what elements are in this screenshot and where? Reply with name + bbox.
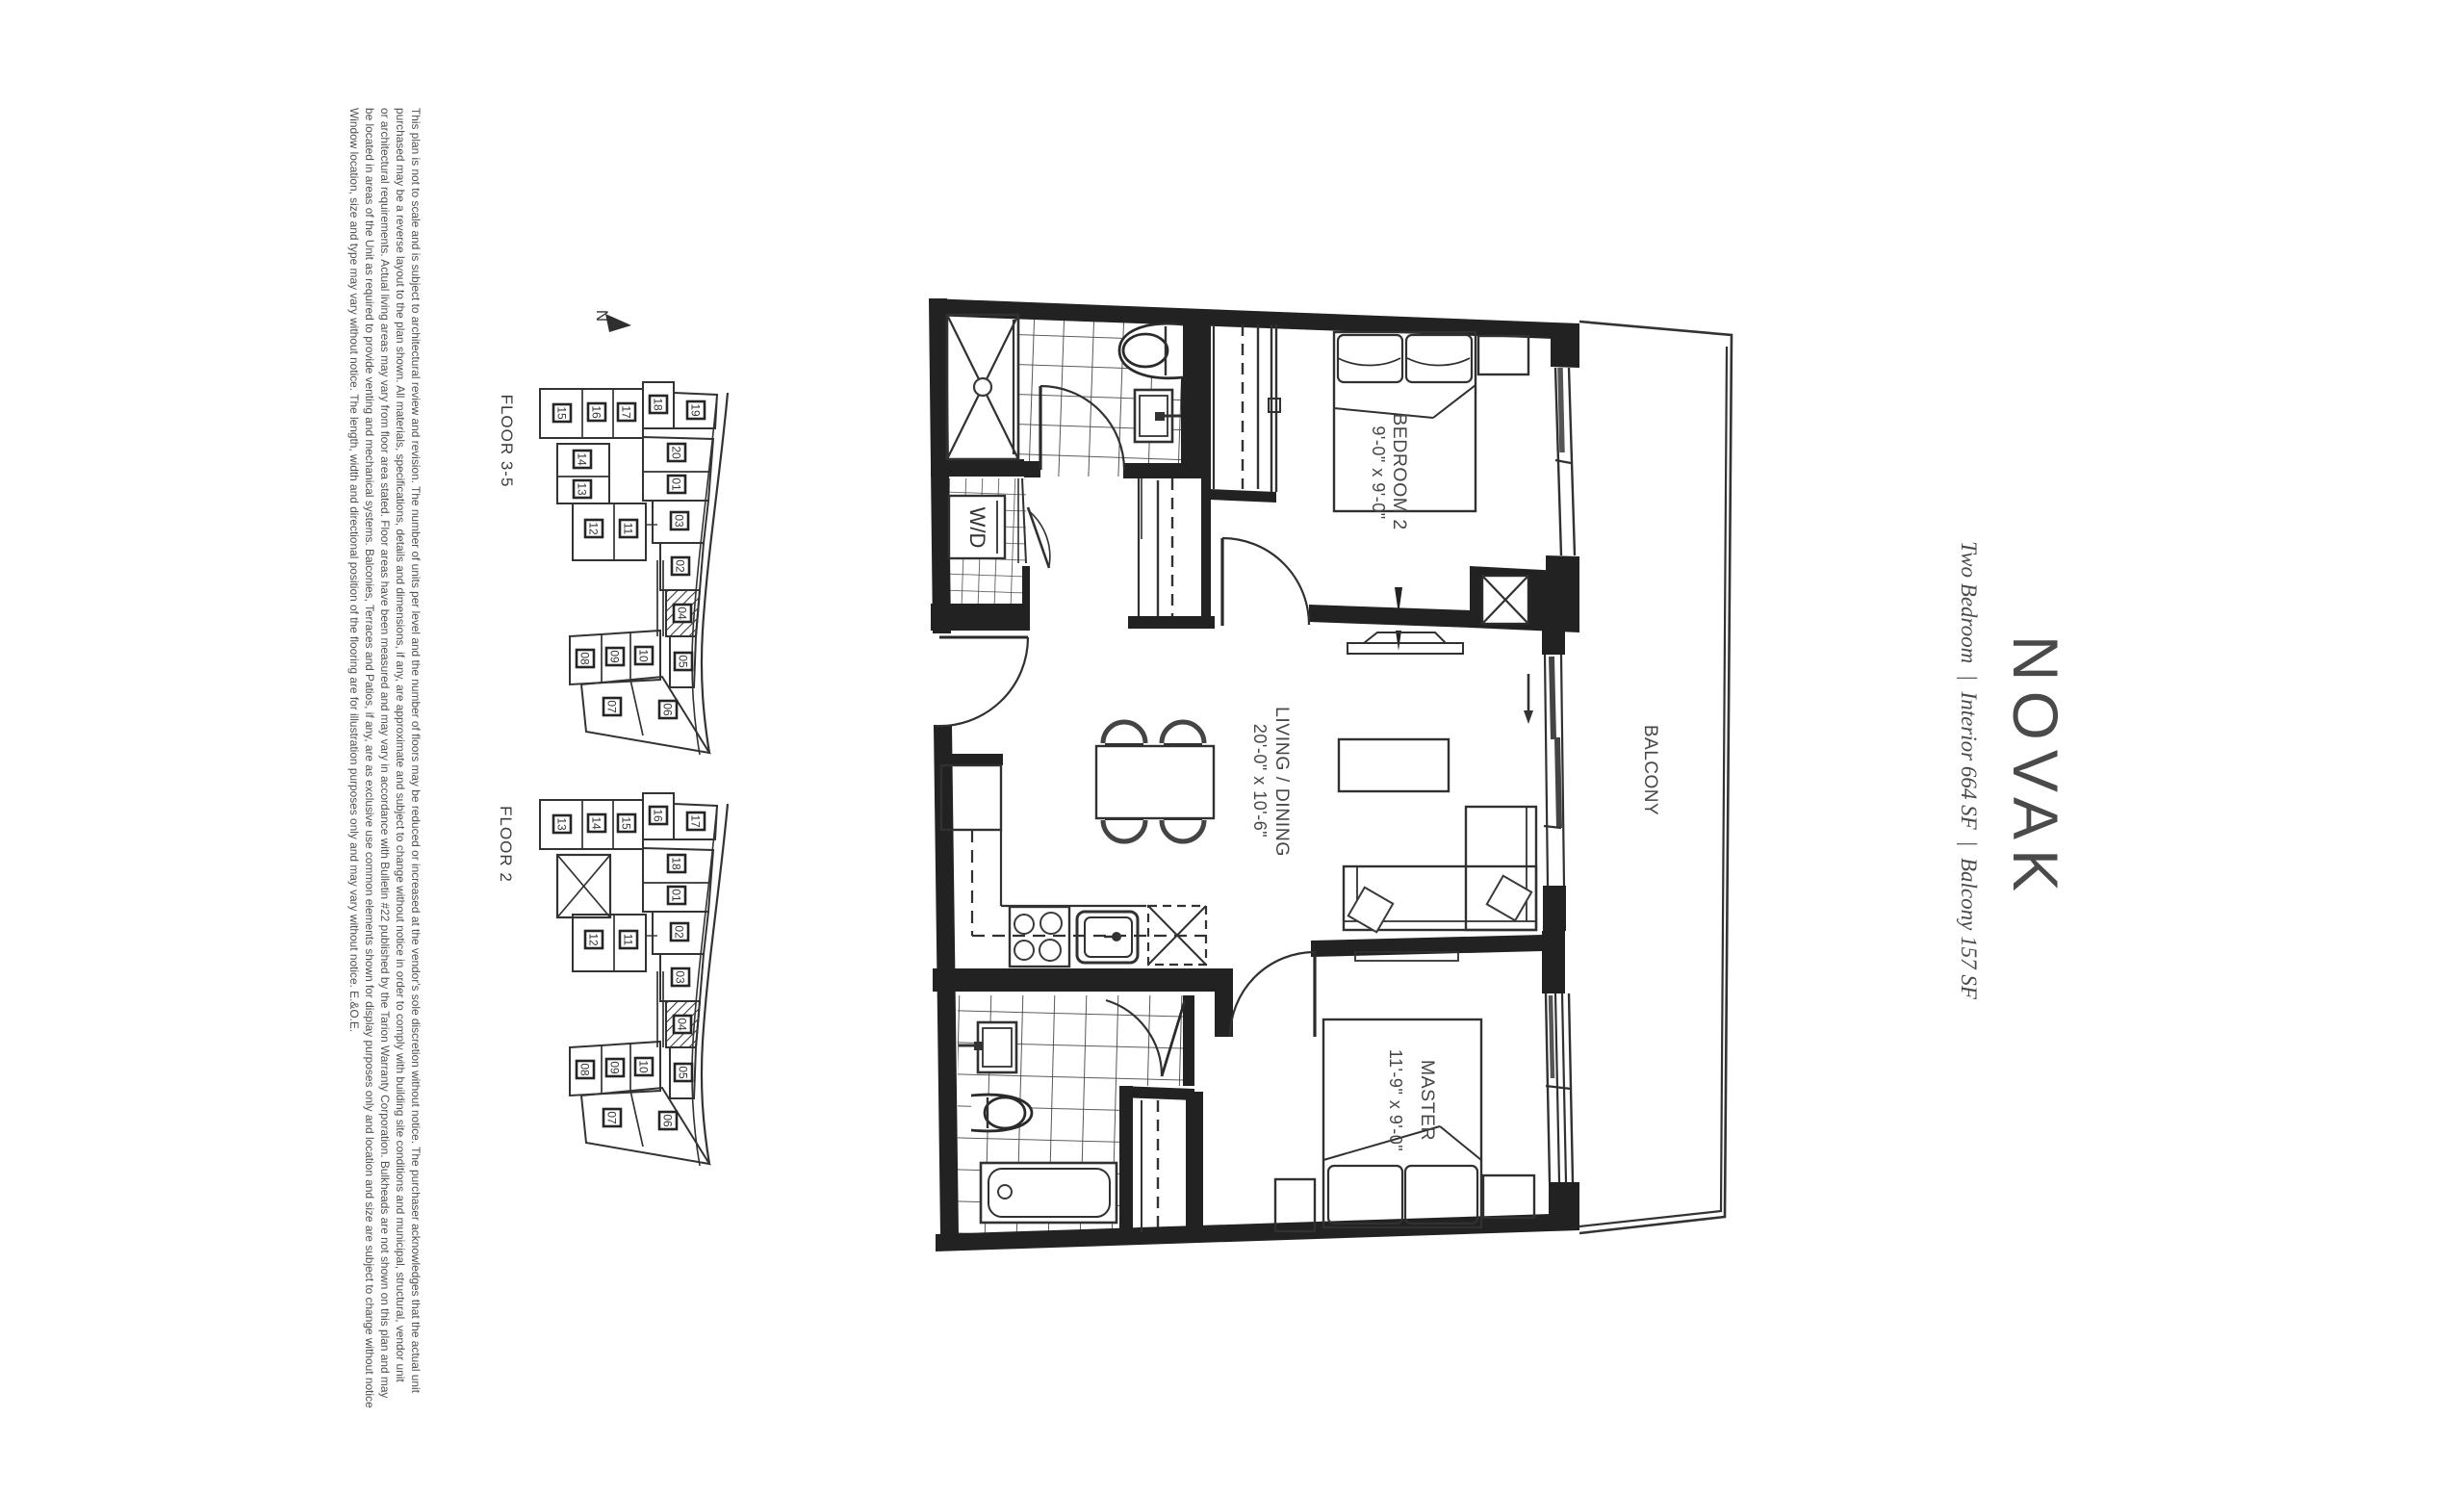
svg-text:10: 10 [637,1060,651,1073]
svg-text:13: 13 [576,482,589,496]
svg-text:12: 12 [587,933,601,946]
svg-text:FLOOR 3-5: FLOOR 3-5 [498,395,516,488]
svg-text:W/D: W/D [965,507,989,549]
svg-text:Two Bedroom | Interior 664 S: Two Bedroom | Interior 664 SF | Balcony … [1957,541,1981,1000]
svg-text:16: 16 [652,809,665,822]
svg-text:15: 15 [620,816,633,830]
svg-text:17: 17 [620,405,633,419]
svg-text:FLOOR 2: FLOOR 2 [497,806,515,883]
svg-text:9'-0" x 9'-0": 9'-0" x 9'-0" [1369,426,1388,519]
svg-text:05: 05 [677,1066,690,1079]
svg-text:18: 18 [670,857,683,870]
svg-text:09: 09 [608,1061,622,1074]
svg-text:06: 06 [661,1114,675,1127]
svg-text:MASTER: MASTER [1417,1060,1438,1141]
svg-text:04: 04 [676,1018,689,1031]
svg-text:05: 05 [677,655,690,668]
svg-text:02: 02 [673,925,686,939]
svg-text:BEDROOM 2: BEDROOM 2 [1389,413,1410,530]
svg-text:purchased may be a reverse lay: purchased may be a reverse layout to the… [394,108,407,1382]
svg-text:11: 11 [622,523,635,535]
svg-text:or architectural requirements.: or architectural requirements. Actual li… [378,108,392,1398]
svg-text:12: 12 [587,522,601,535]
svg-text:17: 17 [689,814,703,828]
svg-text:15: 15 [555,406,569,420]
svg-text:14: 14 [590,816,603,830]
svg-text:08: 08 [578,652,592,665]
svg-text:03: 03 [673,514,686,528]
svg-text:16: 16 [590,405,603,419]
svg-text:NOVAK: NOVAK [2000,635,2071,901]
svg-text:04: 04 [676,606,689,620]
svg-text:19: 19 [689,403,703,417]
svg-text:08: 08 [578,1063,592,1076]
svg-text:20: 20 [670,446,683,459]
svg-text:20'-0" x 10'-6": 20'-0" x 10'-6" [1250,724,1270,838]
svg-text:01: 01 [670,477,683,491]
svg-text:07: 07 [605,1111,619,1124]
svg-text:be located in areas of the Uni: be located in areas of the Unit as requi… [363,108,376,1408]
svg-text:11: 11 [622,934,635,946]
svg-text:This plan is not to scale and: This plan is not to scale and is subject… [409,108,423,1394]
svg-text:14: 14 [576,452,589,466]
svg-text:LIVING / DINING: LIVING / DINING [1271,707,1293,857]
svg-text:02: 02 [674,559,687,573]
svg-text:13: 13 [555,817,569,831]
svg-text:18: 18 [652,398,665,411]
svg-text:06: 06 [661,703,675,716]
svg-text:03: 03 [674,970,687,984]
svg-text:01: 01 [670,889,683,902]
svg-text:09: 09 [608,650,622,663]
svg-text:11'-9" x 9'-0": 11'-9" x 9'-0" [1386,1049,1405,1151]
svg-text:BALCONY: BALCONY [1640,725,1660,815]
svg-text:Window location, size and type: Window location, size and type may vary … [347,108,361,1032]
svg-text:10: 10 [637,649,651,662]
svg-text:07: 07 [605,700,619,713]
